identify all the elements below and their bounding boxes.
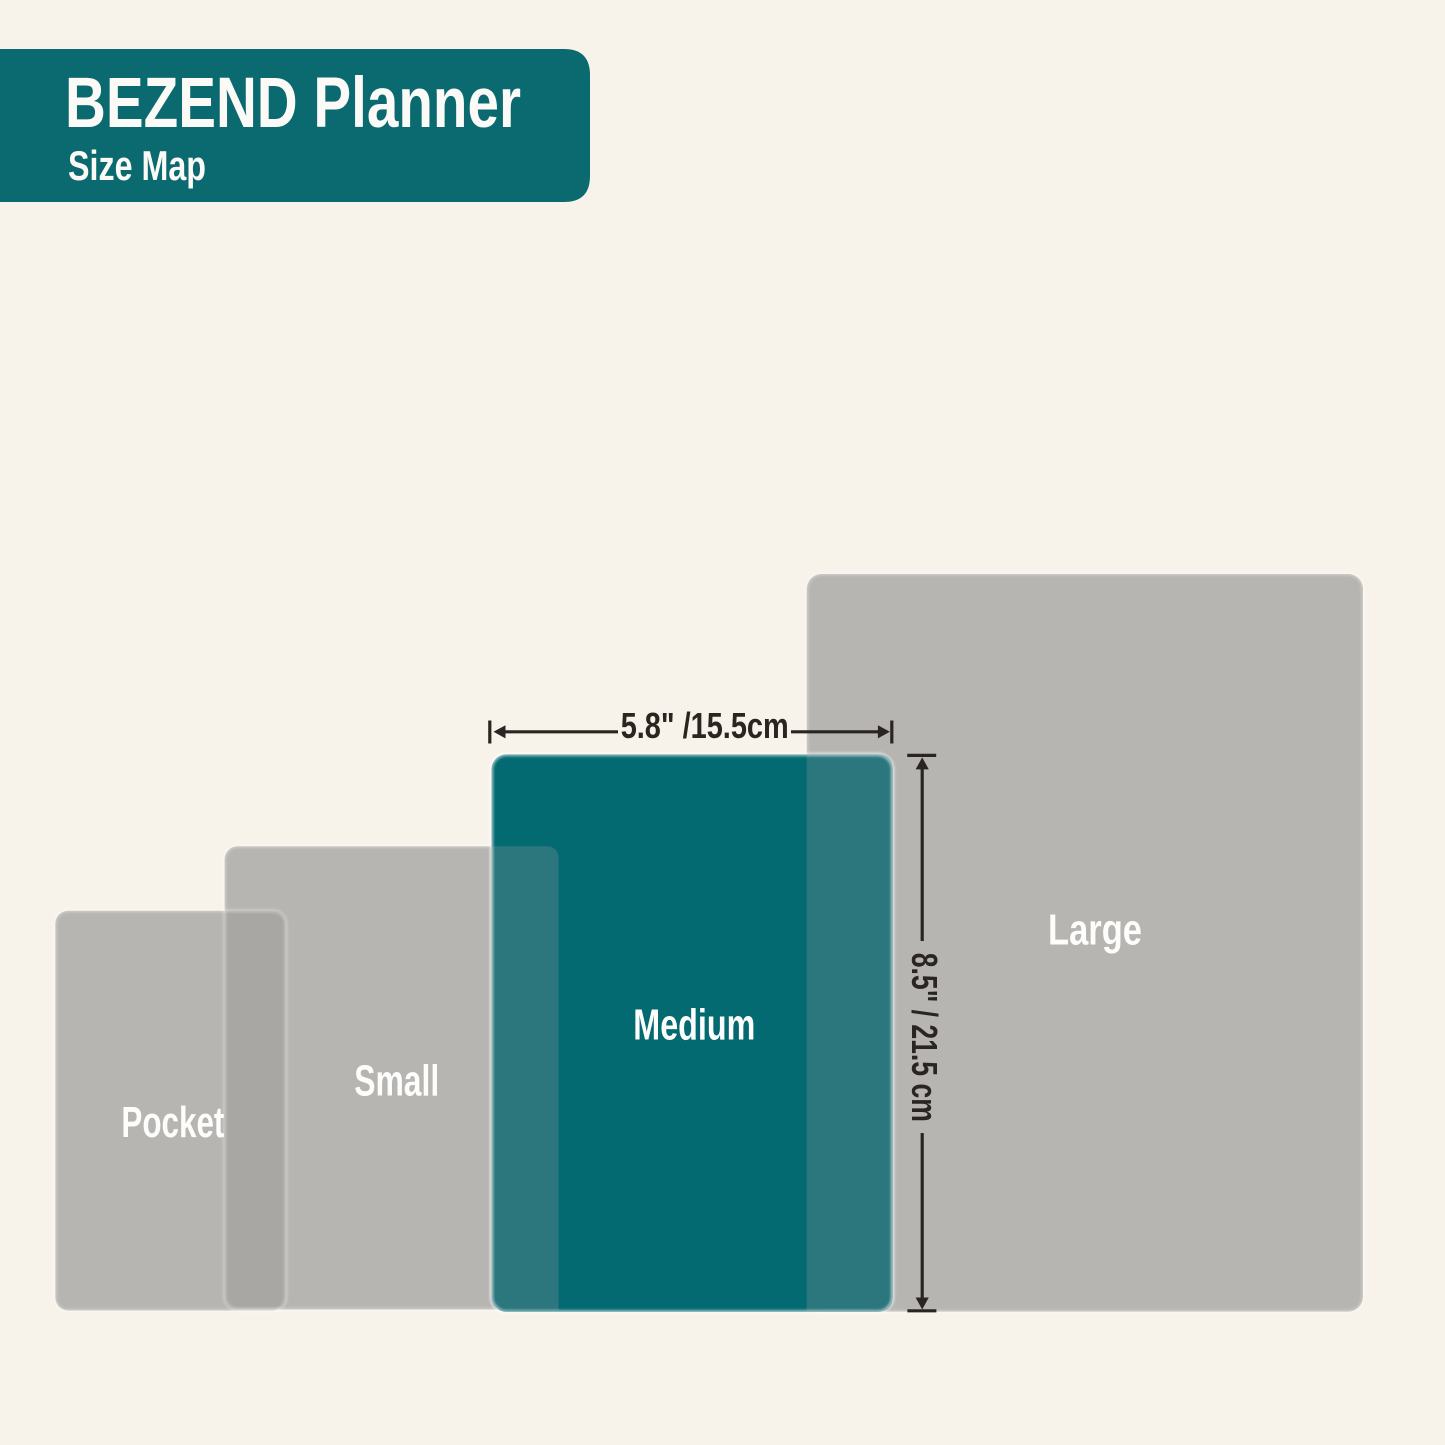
svg-text:Small: Small bbox=[354, 1056, 439, 1105]
svg-text:Pocket: Pocket bbox=[121, 1098, 224, 1147]
svg-text:5.8" /15.5cm: 5.8" /15.5cm bbox=[621, 705, 789, 746]
svg-text:Size Map: Size Map bbox=[68, 142, 206, 189]
svg-text:8.5" / 21.5 cm: 8.5" / 21.5 cm bbox=[904, 953, 945, 1122]
svg-text:Medium: Medium bbox=[633, 1000, 755, 1049]
svg-text:Large: Large bbox=[1048, 905, 1142, 954]
svg-text:BEZEND Planner: BEZEND Planner bbox=[65, 64, 521, 143]
